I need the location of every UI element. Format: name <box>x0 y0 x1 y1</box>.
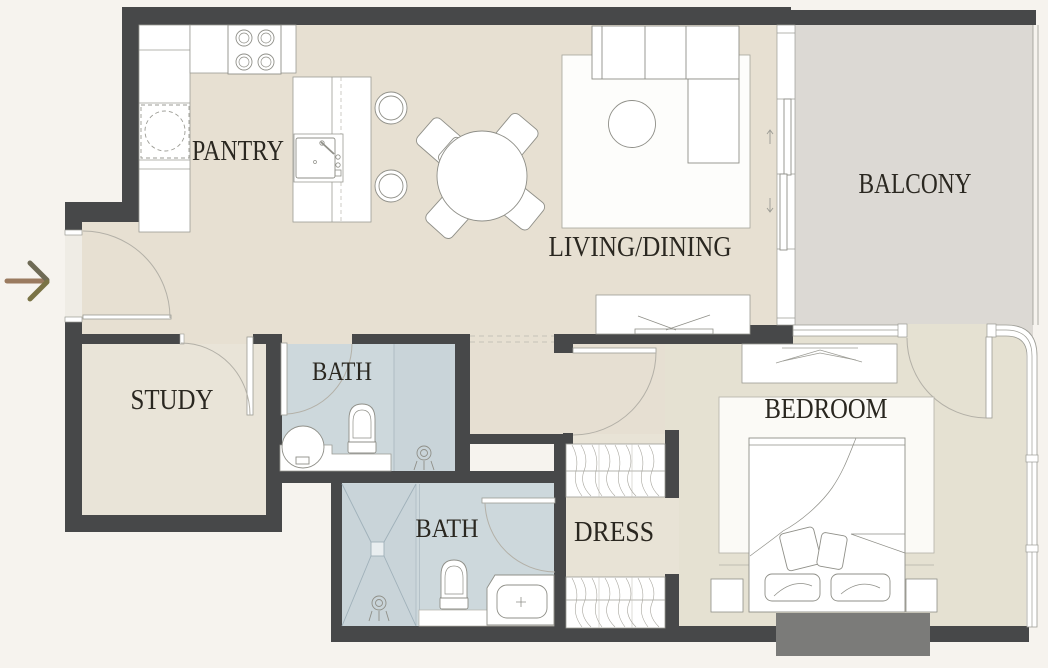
svg-text:BATH: BATH <box>312 357 372 386</box>
svg-text:BALCONY: BALCONY <box>859 169 972 200</box>
svg-text:BATH: BATH <box>416 514 479 543</box>
svg-text:STUDY: STUDY <box>131 385 214 416</box>
svg-text:LIVING/DINING: LIVING/DINING <box>549 232 732 263</box>
svg-text:BEDROOM: BEDROOM <box>765 394 888 425</box>
svg-text:PANTRY: PANTRY <box>192 136 284 167</box>
svg-text:DRESS: DRESS <box>574 517 654 548</box>
